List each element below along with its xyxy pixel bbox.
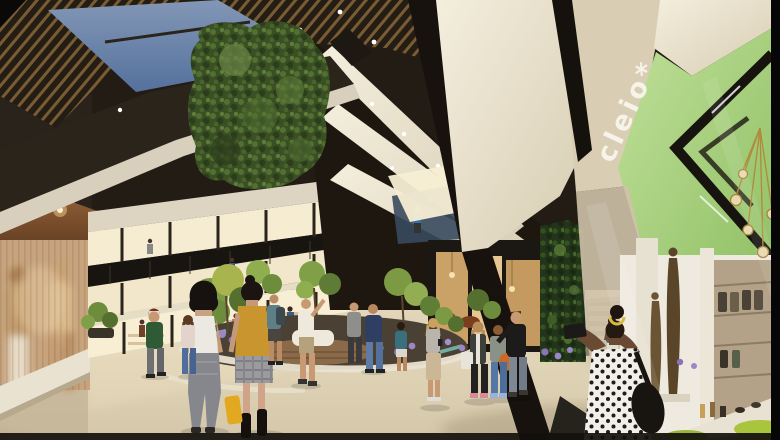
hanging-green-wall [188, 21, 330, 189]
right-bar [771, 0, 780, 440]
living-wall-column [540, 220, 586, 362]
mall-atrium-render: cleio* [0, 0, 780, 440]
render-scene: cleio* [0, 0, 780, 440]
bottom-bar [0, 433, 780, 440]
